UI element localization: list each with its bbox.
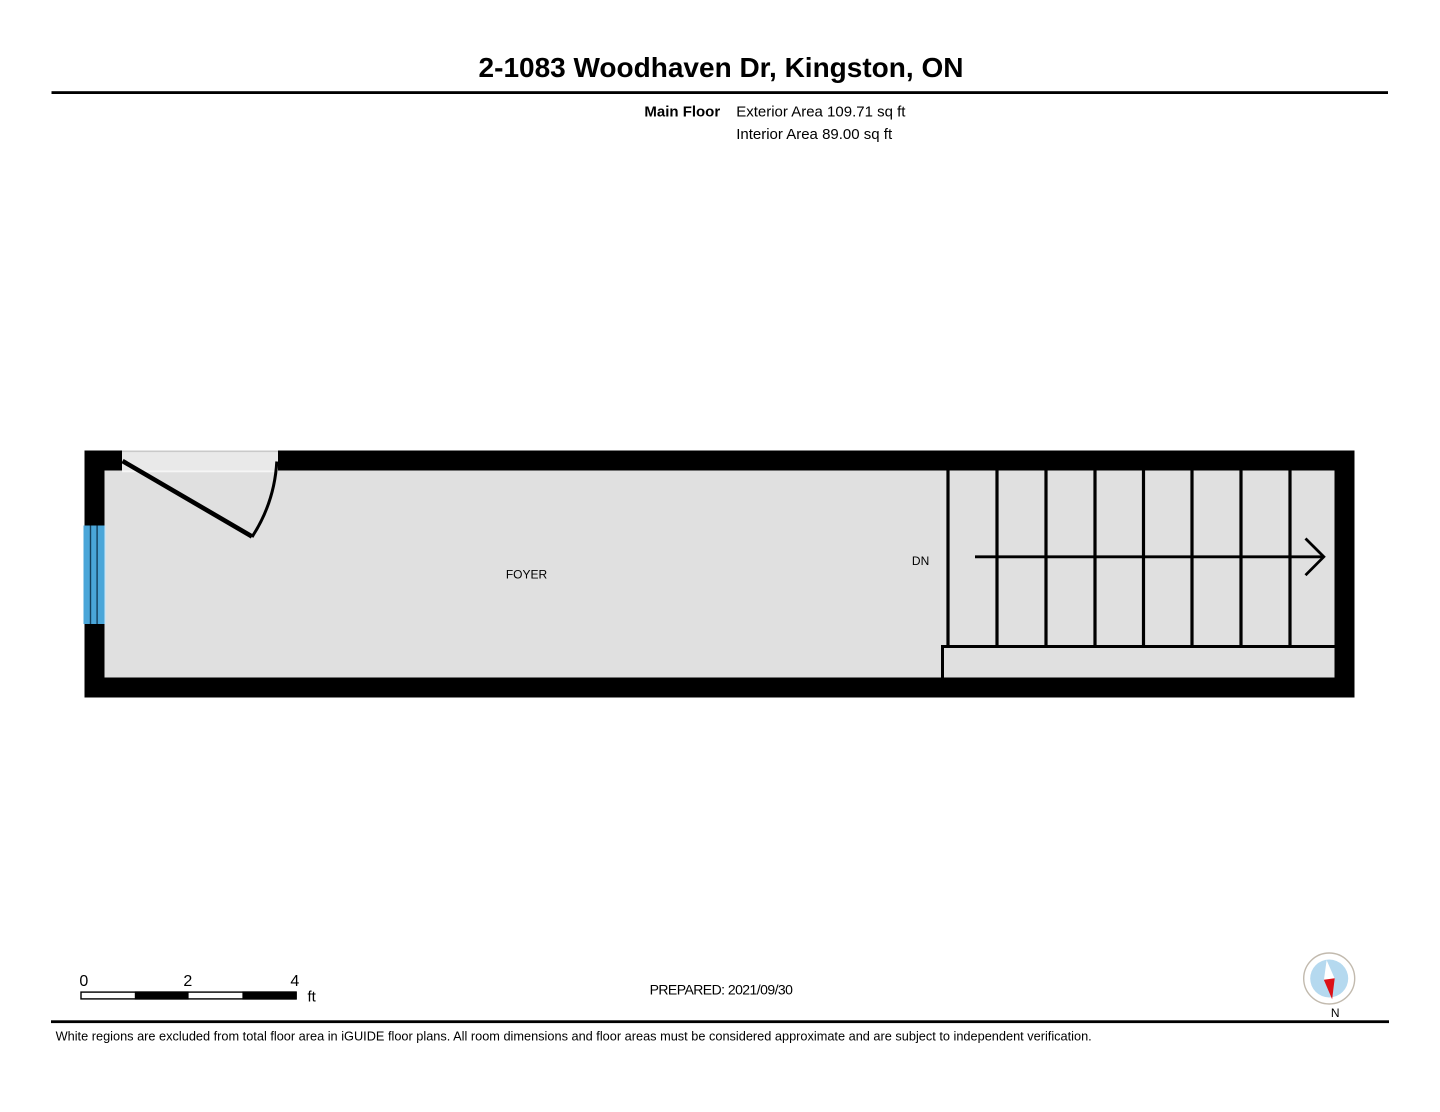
svg-text:ft: ft — [308, 988, 317, 1005]
svg-text:2: 2 — [183, 973, 192, 990]
svg-text:0: 0 — [79, 973, 88, 990]
svg-text:Interior Area 89.00 sq ft: Interior Area 89.00 sq ft — [736, 126, 893, 143]
svg-text:White regions are excluded fro: White regions are excluded from total fl… — [56, 1028, 1092, 1043]
svg-text:2-1083 Woodhaven Dr, Kingston,: 2-1083 Woodhaven Dr, Kingston, ON — [479, 52, 964, 83]
svg-text:PREPARED: 2021/09/30: PREPARED: 2021/09/30 — [650, 982, 794, 998]
svg-text:Main Floor: Main Floor — [644, 104, 720, 121]
svg-text:DN: DN — [912, 554, 929, 568]
svg-text:N: N — [1331, 1006, 1340, 1020]
svg-text:FOYER: FOYER — [506, 567, 548, 581]
svg-text:4: 4 — [290, 973, 299, 990]
svg-text:Exterior Area 109.71 sq ft: Exterior Area 109.71 sq ft — [736, 104, 906, 121]
